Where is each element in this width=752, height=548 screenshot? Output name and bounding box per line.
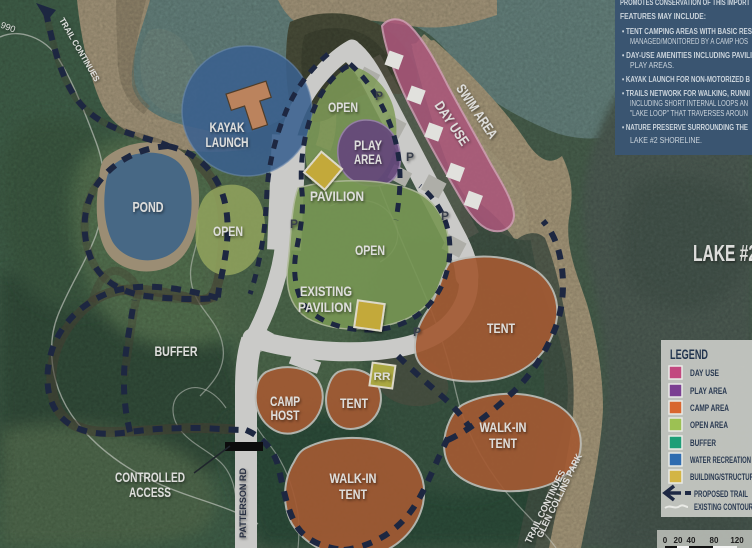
- svg-text:PLAY AREA: PLAY AREA: [690, 386, 727, 396]
- svg-text:LAKE #2 SHORELINE.: LAKE #2 SHORELINE.: [630, 136, 702, 145]
- svg-text:EXISTING CONTOUR: EXISTING CONTOUR: [694, 502, 752, 512]
- svg-text:PROMOTES CONSERVATION OF THIS: PROMOTES CONSERVATION OF THIS IMPORT: [620, 0, 750, 7]
- svg-text:• TRAILS NETWORK FOR WALKING,: • TRAILS NETWORK FOR WALKING, RUNNI: [622, 89, 750, 98]
- svg-text:DAY USE: DAY USE: [690, 368, 719, 378]
- svg-text:INCLUDING SHORT INTERNAL LOOPS: INCLUDING SHORT INTERNAL LOOPS AN: [630, 99, 748, 108]
- svg-text:MANAGED/MONITORED BY A CAMP HO: MANAGED/MONITORED BY A CAMP HOS: [630, 37, 748, 46]
- svg-text:0: 0: [663, 536, 668, 545]
- svg-text:OPEN AREA: OPEN AREA: [690, 420, 728, 430]
- svg-text:• KAYAK LAUNCH FOR NON-MOTORIZ: • KAYAK LAUNCH FOR NON-MOTORIZED B: [622, 75, 750, 84]
- svg-text:120: 120: [730, 536, 744, 545]
- svg-text:WATER RECREATION: WATER RECREATION: [690, 455, 751, 465]
- svg-text:CAMP AREA: CAMP AREA: [690, 403, 729, 413]
- svg-text:FEATURES MAY INCLUDE:: FEATURES MAY INCLUDE:: [620, 12, 706, 21]
- svg-text:PLAY AREAS.: PLAY AREAS.: [630, 61, 674, 70]
- svg-text:BUFFER: BUFFER: [690, 438, 716, 448]
- svg-text:• NATURE PRESERVE SURROUNDING: • NATURE PRESERVE SURROUNDING THE: [622, 123, 749, 132]
- svg-text:40: 40: [687, 536, 696, 545]
- svg-text:• DAY-USE AMENITIES INCLUDING: • DAY-USE AMENITIES INCLUDING PAVILI: [622, 51, 752, 60]
- svg-text:"LAKE LOOP" THAT TRAVERSES ARO: "LAKE LOOP" THAT TRAVERSES AROUN: [630, 109, 748, 118]
- svg-text:BUILDING/STRUCTURE: BUILDING/STRUCTURE: [690, 472, 752, 482]
- svg-text:20: 20: [674, 536, 683, 545]
- svg-text:• TENT CAMPING AREAS WITH BASI: • TENT CAMPING AREAS WITH BASIC RES: [622, 27, 752, 36]
- svg-text:PROPOSED TRAIL: PROPOSED TRAIL: [694, 489, 748, 499]
- svg-text:80: 80: [710, 536, 719, 545]
- svg-text:LEGEND: LEGEND: [670, 346, 708, 362]
